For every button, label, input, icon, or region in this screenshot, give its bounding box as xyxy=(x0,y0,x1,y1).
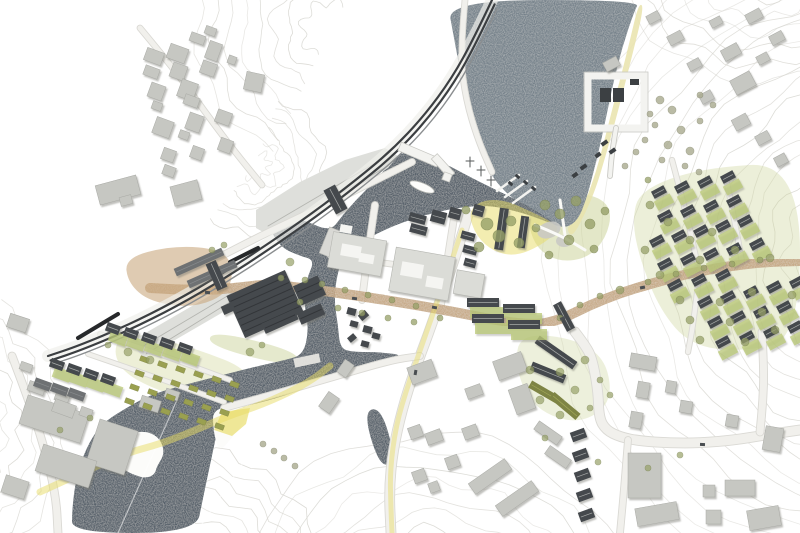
houses-south-column xyxy=(570,428,596,523)
rowgrid-south-of-street xyxy=(467,298,547,340)
map-layers xyxy=(0,0,800,533)
lawn-mill xyxy=(210,335,298,364)
site-plan-map xyxy=(0,0,800,533)
masterplan-drawing xyxy=(0,0,800,533)
